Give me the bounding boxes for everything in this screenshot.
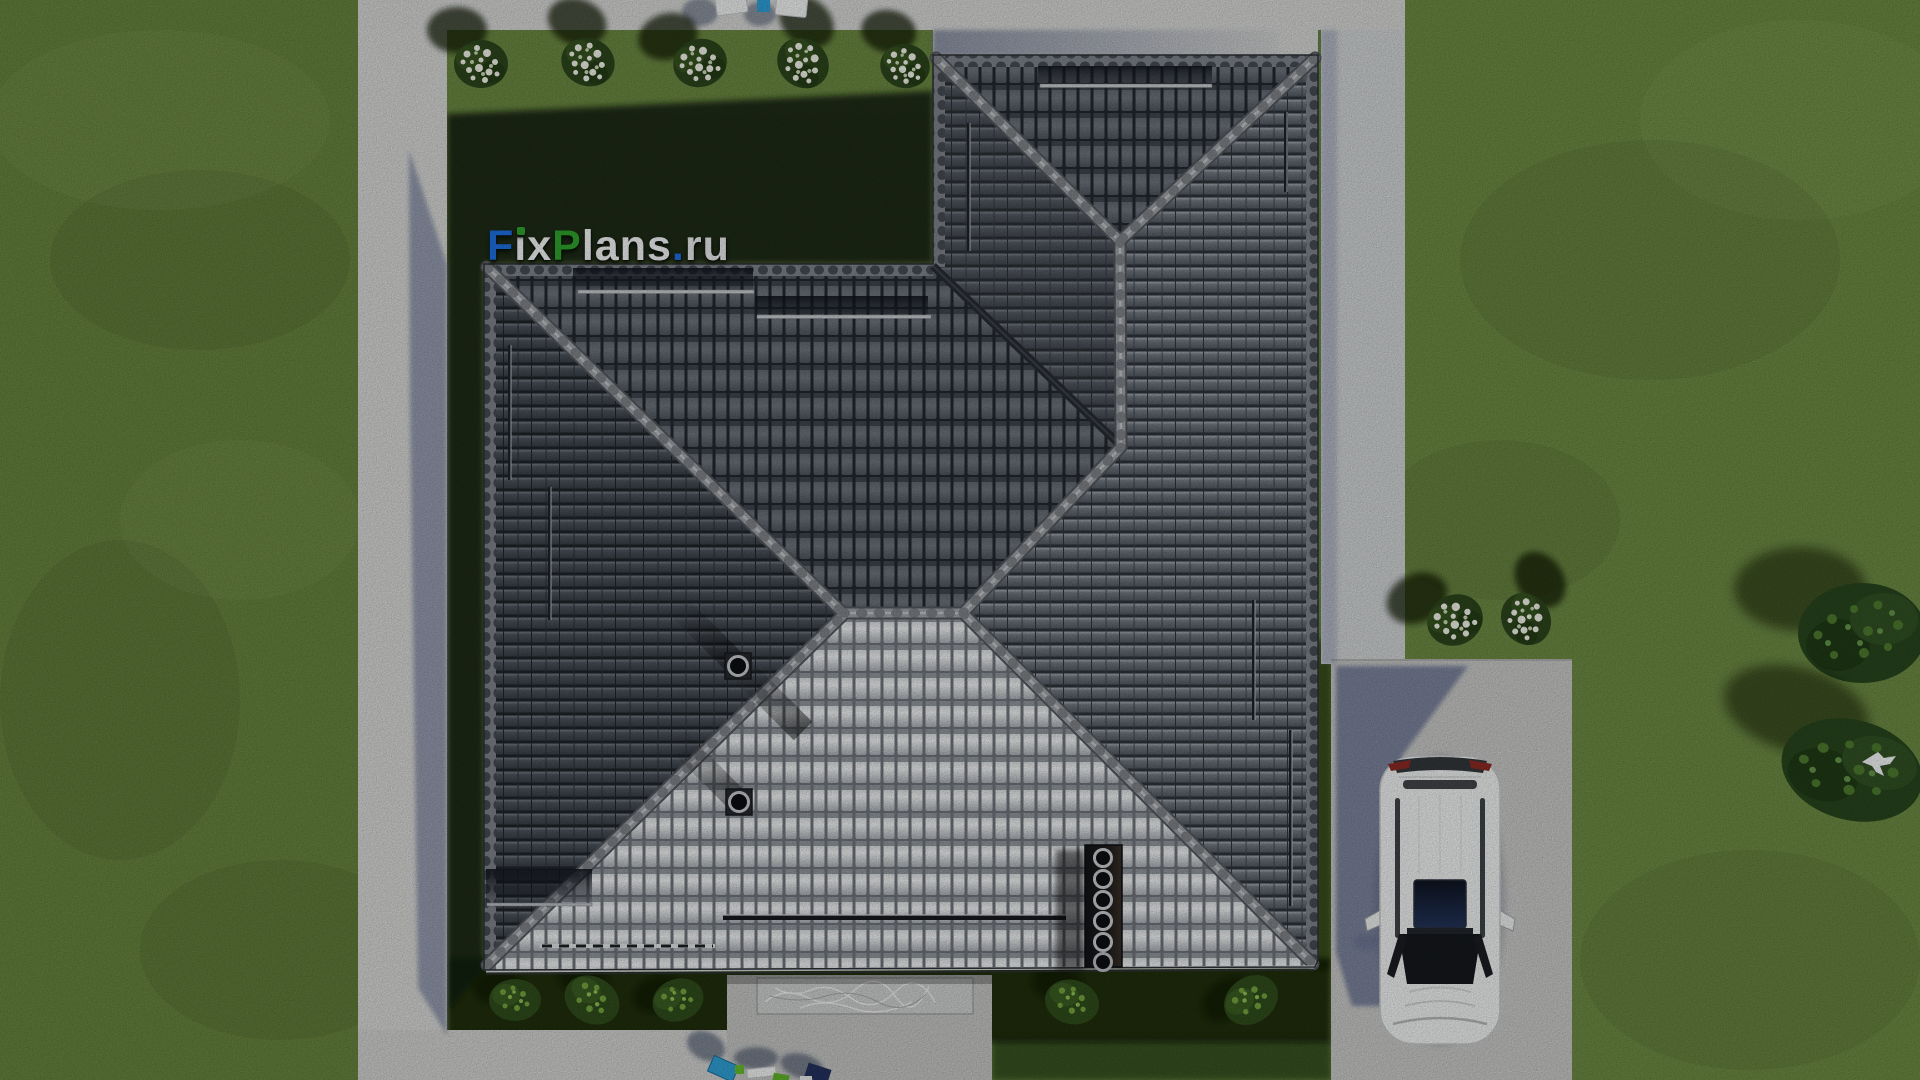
chimney <box>1056 845 1122 971</box>
render-viewport: FıxPlans.ru <box>0 0 1920 1080</box>
car-roof-rail-right <box>1480 798 1485 938</box>
site-plan-render <box>0 0 1920 1080</box>
eave-row-right <box>1306 55 1318 960</box>
watermark-logo: FıxPlans.ru <box>487 222 730 271</box>
logo-seg-ru: ru <box>685 222 730 270</box>
eave-row-left <box>484 264 496 970</box>
car-sunroof <box>1414 880 1466 928</box>
car <box>1365 754 1515 1046</box>
logo-seg-f: F <box>487 222 514 270</box>
logo-seg-dot: . <box>672 222 685 270</box>
logo-seg-lans: lans <box>582 222 672 270</box>
logo-seg-x: x <box>527 222 552 270</box>
logo-seg-p: P <box>552 222 582 270</box>
logo-i-dot <box>517 227 525 235</box>
eave-row-wing-left <box>933 55 945 267</box>
walkway-bottom <box>358 1030 727 1080</box>
patio-eave-shadow <box>727 975 992 984</box>
logo-seg-i: ı <box>514 222 527 270</box>
car-roof-rail-left <box>1395 798 1400 938</box>
eave-row-wing-top <box>933 55 1318 67</box>
car-windshield <box>1399 934 1481 984</box>
walkway-top-shadow <box>933 30 1278 56</box>
